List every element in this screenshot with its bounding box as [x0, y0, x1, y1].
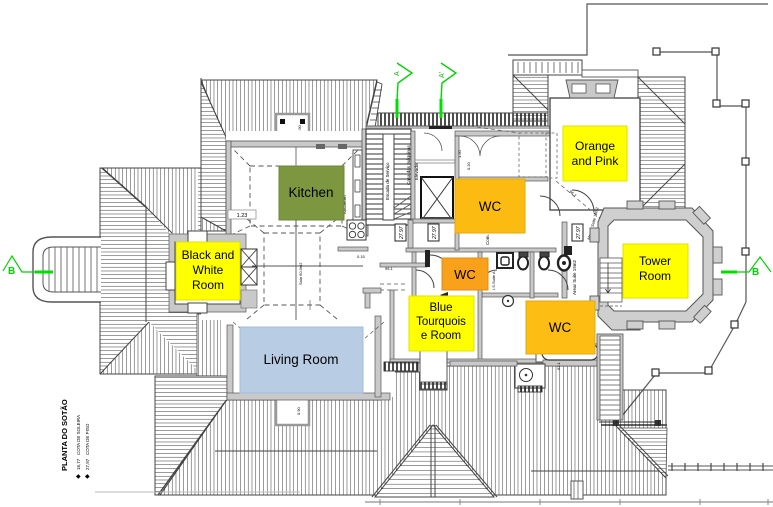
svg-text:A': A': [439, 72, 446, 78]
svg-text:Escada de Serviço: Escada de Serviço: [385, 162, 390, 200]
svg-text:Room: Room: [192, 278, 224, 292]
svg-text:0.20: 0.20: [466, 161, 471, 170]
svg-text:16,77 COTA DE SOLEIRA: 16,77 COTA DE SOLEIRA: [76, 415, 81, 470]
svg-text:B: B: [752, 267, 759, 278]
svg-text:1.23: 1.23: [237, 213, 248, 219]
svg-text:0.15: 0.15: [357, 254, 366, 259]
svg-text:Elevador: Elevador: [414, 162, 419, 180]
svg-text:95.1: 95.1: [385, 266, 394, 271]
svg-text:Tower: Tower: [639, 254, 671, 268]
svg-text:I.S.Suite A: I.S.Suite A: [491, 271, 496, 290]
svg-text:WC: WC: [454, 267, 476, 282]
svg-text:B: B: [8, 266, 15, 277]
svg-text:27,97 COTA DE PISO: 27,97 COTA DE PISO: [85, 423, 90, 470]
svg-text:◆: ◆: [76, 474, 81, 480]
svg-text:e Room: e Room: [421, 330, 461, 342]
svg-text:62.1: 62.1: [556, 361, 561, 370]
svg-text:Sala 60.3m2: Sala 60.3m2: [298, 262, 303, 285]
svg-text:27.97: 27.97: [432, 226, 438, 240]
svg-text:White: White: [193, 263, 224, 277]
svg-text:0.90: 0.90: [296, 406, 301, 415]
svg-text:27.97: 27.97: [399, 226, 405, 240]
svg-text:Room: Room: [639, 269, 671, 283]
svg-text:PLANTA DO SOTÃO: PLANTA DO SOTÃO: [60, 399, 69, 471]
svg-text:1.50: 1.50: [457, 149, 462, 158]
svg-text:Kitchen: Kitchen: [288, 185, 333, 200]
svg-text:Arear Suite 19m2: Arear Suite 19m2: [572, 259, 577, 295]
svg-text:Blue: Blue: [429, 302, 452, 314]
svg-text:Casa das máquinas: Casa das máquinas: [406, 144, 411, 185]
svg-text:A: A: [394, 71, 401, 76]
svg-text:Tourquois: Tourquois: [416, 316, 466, 328]
svg-text:WC: WC: [479, 199, 502, 214]
svg-text:Living Room: Living Room: [263, 352, 338, 367]
svg-text:Orange: Orange: [575, 139, 615, 153]
svg-text:Black and: Black and: [182, 248, 235, 262]
svg-text:Com.: Com.: [485, 234, 490, 245]
svg-text:WC: WC: [549, 320, 572, 335]
svg-text:and Pink: and Pink: [572, 154, 620, 168]
svg-text:◆: ◆: [85, 474, 90, 480]
svg-text:27.97: 27.97: [576, 226, 582, 240]
